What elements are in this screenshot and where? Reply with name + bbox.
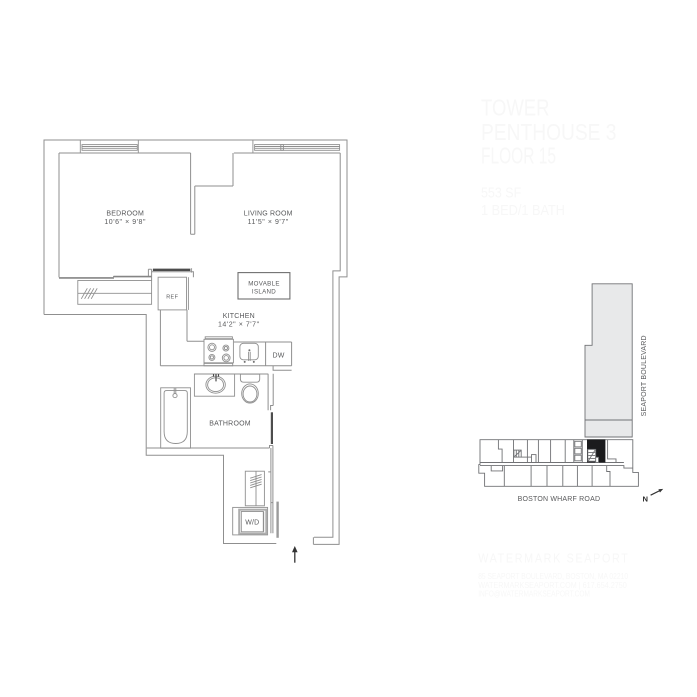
svg-text:MOVABLE: MOVABLE xyxy=(248,281,280,288)
svg-text:TOWER: TOWER xyxy=(481,95,550,121)
svg-text:BATHROOM: BATHROOM xyxy=(209,421,251,428)
svg-text:10'6" × 9'8": 10'6" × 9'8" xyxy=(104,219,146,226)
svg-text:WATERMARKSEAPORT.COM | 617.654: WATERMARKSEAPORT.COM | 617.654.2750 xyxy=(478,581,627,590)
svg-text:SEAPORT BOULEVARD: SEAPORT BOULEVARD xyxy=(641,335,648,416)
svg-text:LIVING ROOM: LIVING ROOM xyxy=(244,211,293,218)
svg-text:553 SF: 553 SF xyxy=(481,184,521,201)
svg-text:14'2" × 7'7": 14'2" × 7'7" xyxy=(218,321,260,328)
svg-text:1 BED/1 BATH: 1 BED/1 BATH xyxy=(481,202,565,219)
svg-text:W/D: W/D xyxy=(245,519,259,526)
svg-text:11'5" × 9'7": 11'5" × 9'7" xyxy=(248,219,289,226)
svg-text:BEDROOM: BEDROOM xyxy=(106,211,144,218)
svg-text:ISLAND: ISLAND xyxy=(252,289,276,296)
svg-text:REF: REF xyxy=(166,294,178,300)
svg-text:BOSTON WHARF ROAD: BOSTON WHARF ROAD xyxy=(518,496,601,503)
svg-text:WATERMARK SEAPORT: WATERMARK SEAPORT xyxy=(478,551,629,566)
svg-text:FLOOR 15: FLOOR 15 xyxy=(481,143,556,169)
svg-text:DW: DW xyxy=(272,353,284,360)
svg-text:KITCHEN: KITCHEN xyxy=(223,313,255,320)
svg-text:PENTHOUSE 3: PENTHOUSE 3 xyxy=(481,119,617,145)
svg-text:INFO@WATERMARKSEAPORT.COM: INFO@WATERMARKSEAPORT.COM xyxy=(478,590,590,599)
svg-text:N: N xyxy=(643,494,648,503)
svg-text:85 SEAPORT BOULEVARD, BOSTON,: 85 SEAPORT BOULEVARD, BOSTON, MA 02210 xyxy=(478,572,628,581)
